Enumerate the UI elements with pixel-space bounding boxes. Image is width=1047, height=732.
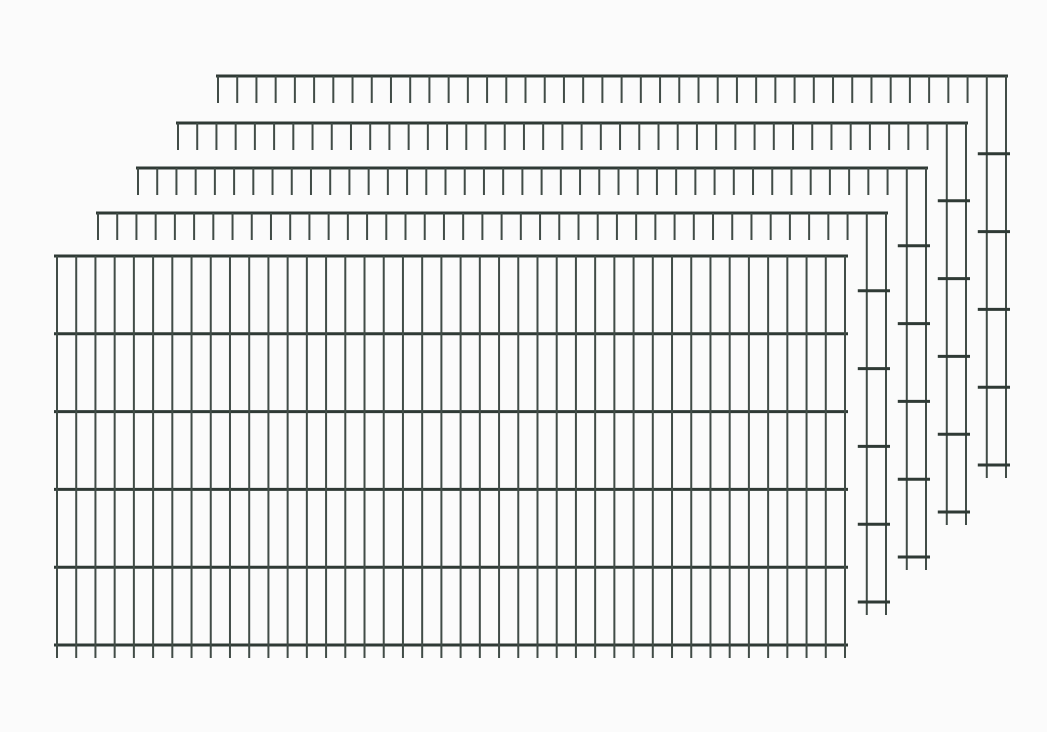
fence-panel-3 (136, 168, 930, 570)
fence-panel-5 (216, 76, 1010, 478)
product-image-stage (0, 0, 1047, 732)
fence-panels-svg (0, 0, 1047, 732)
fence-panel-1 (54, 256, 848, 658)
fence-panel-4 (176, 123, 970, 525)
fence-panel-2 (96, 213, 890, 615)
fence-panel-set-illustration (0, 0, 1047, 732)
